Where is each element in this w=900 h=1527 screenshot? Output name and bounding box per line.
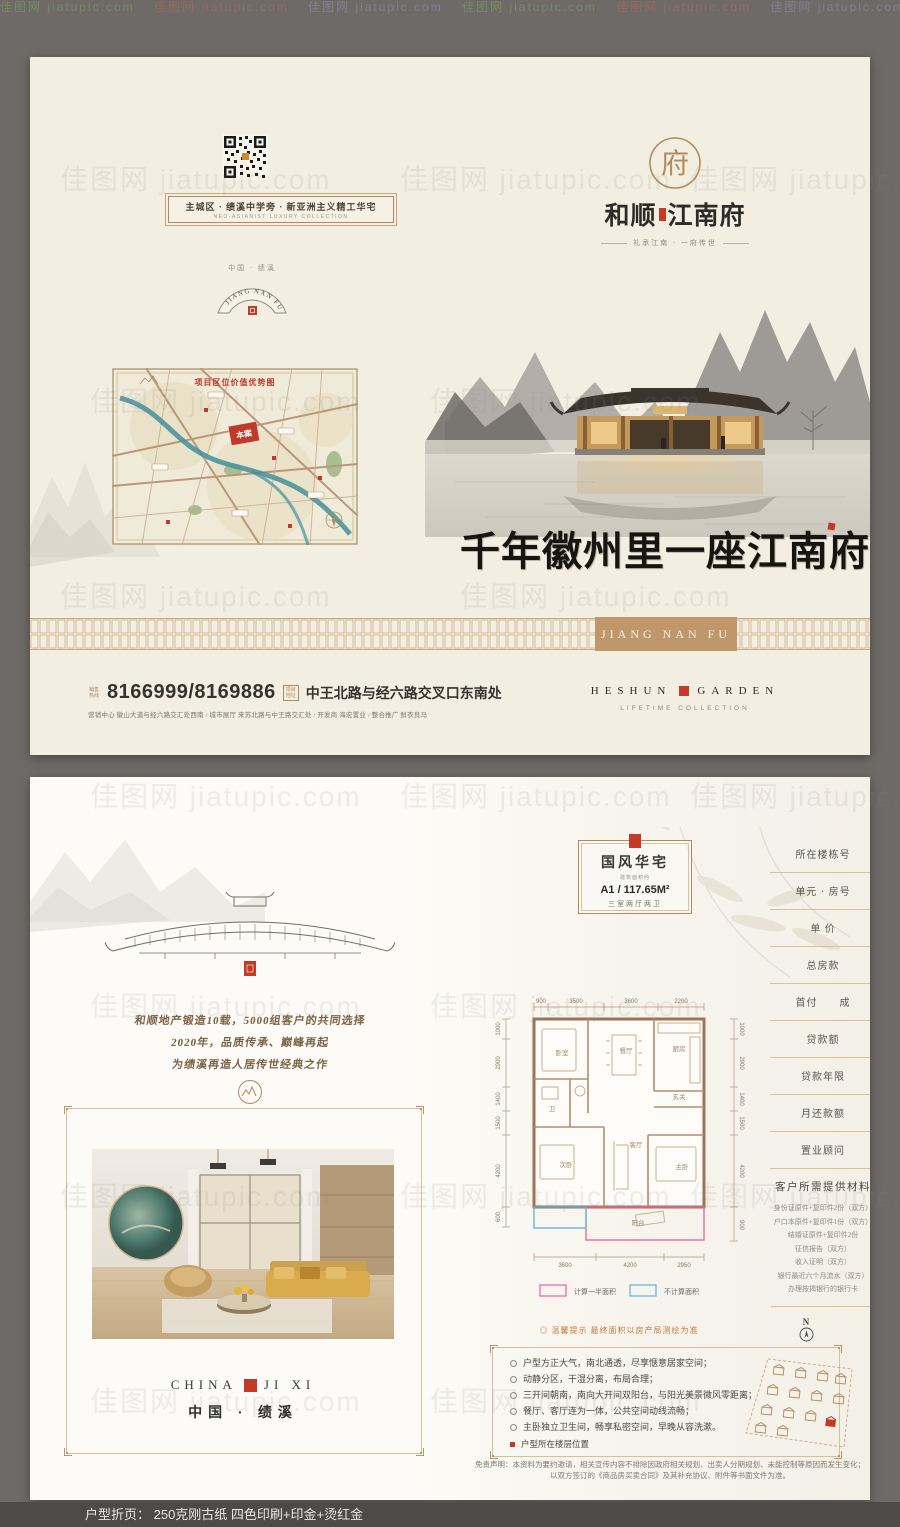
feature-item: 户型方正大气，南北通透，尽享惬意居家空间； [510,1355,778,1371]
dim-label: 4200 [738,1164,744,1178]
feature-item: 餐厅、客厅连为一体，公共空间动线流畅； [510,1403,778,1419]
qr-code [222,134,268,180]
material-item: 银行最近六个月流水（双方） [752,1270,870,1284]
room-label: 厨房 [673,1044,686,1053]
dim-label: 1000 [496,1022,502,1036]
room-label: 餐厅 [620,1046,634,1055]
form-field: 首付 成 [758,987,870,1024]
brochure-mockup: 主城区 · 绩溪中学旁 · 新亚洲主义精工华宅 NEO-ASIANIST LUX… [0,0,900,1527]
brand-name-right: 江南府 [668,196,746,232]
address-icon: 项目地址 [283,685,299,701]
brand-name-left: 和顺 [604,196,656,232]
legend-none-label: 不计算面积 [664,1287,699,1296]
top-watermark-row: 佳图网 jiatupic.com 佳图网 jiatupic.com 佳图网 ji… [0,0,900,15]
sofa-icon [266,1261,370,1297]
form-field: 所在楼栋号 [758,839,870,876]
calligraphy-slogan: 千年徽州里一座江南府 [460,529,870,574]
intro-line: 和顺地产锻造10载，5000组客户的共同选择 [83,1010,416,1032]
spec-caption-bar: 户型折页： 250克刚古纸 四色印刷+印金+烫红金 [0,1502,900,1527]
location-map: 本案 项目区位价值优势图 [112,368,358,545]
room-label: 阳台 [632,1218,645,1227]
form-field: 单元 · 房号 [758,876,870,913]
banner-subtitle: NEO-ASIANIST LUXURY COLLECTION [169,214,393,220]
compass-n-label: N [788,1317,824,1327]
dim-label: 4200 [623,1263,637,1269]
floorplan-legend: 计算一半面积 不计算面积 [540,1285,699,1296]
legend-half-label: 计算一半面积 [574,1287,616,1296]
unit-card-seal-icon [629,834,641,848]
form-field: 贷款年限 [758,1061,870,1098]
floor-plan: 900 3500 3600 2200 1000 2900 1400 1500 4… [486,995,752,1305]
brand-en-seal-icon [679,686,689,696]
features-list: 户型方正大气，南北通透，尽享惬意居家空间； 动静分区，干湿分离，布局合理； 三开… [510,1355,778,1450]
form-field: 置业顾问 [758,1135,870,1172]
dim-label: 4200 [496,1164,502,1178]
brand-roundel-icon: 府 [647,135,703,191]
disclaimer: 免责声明：本资料为要约邀请，相关宣传内容不排除因政府相关规划、出卖人分期规划、未… [460,1459,870,1481]
dim-label: 3600 [624,999,638,1005]
project-address: 中王北路与经六路交叉口东南处 [306,683,502,703]
feature-item: 动静分区，干湿分离，布局合理； [510,1371,778,1387]
banner-title: 主城区 · 绩溪中学旁 · 新亚洲主义精工华宅 [169,200,393,213]
form-field: 贷款额 [758,1024,870,1061]
china-cn: 中国 · 绩溪 [66,1402,420,1422]
form-field: 月还款额 [758,1098,870,1135]
room-label: 主卧 [676,1162,690,1171]
roof-seal-icon [244,961,256,976]
fan-red-seal-icon [248,306,257,315]
contact-block: 销售热线 8166999/8169886 项目地址 中王北路与经六路交叉口东南处… [88,681,518,719]
cover-spread: 主城区 · 绩溪中学旁 · 新亚洲主义精工华宅 NEO-ASIANIST LUX… [30,57,870,755]
material-item: 结婚证原件+复印件2份 [752,1229,870,1243]
hotline-icon: 销售热线 [88,687,100,699]
dim-label: 1400 [738,1092,744,1106]
calligraphy-block: 千年徽州里一座江南府 [460,519,855,577]
feature-item: 主卧独立卫生间，畅享私密空间，早晚从容洗漱。 [510,1419,778,1435]
hotline-numbers: 8166999/8169886 [107,681,276,704]
material-item: 户口本原件+复印件1份（双方） [752,1216,870,1230]
country-label: 中国 · 绩溪 [192,263,312,273]
map-compass-icon [326,512,342,528]
lattice-band: JIANG NAN FU [30,617,870,651]
fan-seal: JIANG NAN FU [212,275,292,321]
intro-copy: 和顺地产锻造10载，5000组客户的共同选择 2020年，品质传承、巅峰再起 为… [85,1010,415,1076]
dim-label: 1500 [496,1116,502,1130]
intro-line: 为绩溪再造人居传世经典之作 [83,1054,416,1076]
inside-spread: 和顺地产锻造10载，5000组客户的共同选择 2020年，品质传承、巅峰再起 为… [30,777,870,1500]
disclaimer-line2: 以双方签订的《商品房买卖合同》及其补充协议、附件等书面文件为准。 [460,1470,870,1481]
room-label: 客厅 [630,1140,644,1149]
feature-item: 三开间朝南，南向大开间双阳台，与阳光美景微风零距离； [510,1387,778,1403]
brand-logo: 府 和顺江南府 礼承江南 · 一府传世 [585,135,765,248]
brand-mini-seal-icon [659,208,666,221]
brand-name: 和顺江南府 [585,196,765,232]
location-banner: 主城区 · 绩溪中学旁 · 新亚洲主义精工华宅 NEO-ASIANIST LUX… [168,196,394,223]
china-seal-icon [244,1379,257,1392]
room-label: 卧室 [556,1048,570,1057]
china-en: CHINA [171,1377,237,1393]
room-label: 玄关 [673,1092,687,1101]
north-compass: N [788,1317,824,1347]
site-plan [740,1353,866,1453]
dim-label: 2900 [738,1056,744,1070]
compass-icon [799,1327,814,1342]
armchair-icon [164,1265,212,1297]
calligraphy-seal-icon [827,522,835,530]
brand-en-left: HESHUN [591,685,672,697]
disclaimer-line1: 免责声明：本资料为要约邀请，相关宣传内容不排除因政府相关规划、出卖人分期规划、未… [460,1459,870,1470]
form-field: 总房款 [758,950,870,987]
dim-label: 1000 [738,1022,744,1036]
interior-photo [92,1149,394,1339]
dim-label: 2200 [674,999,688,1005]
room-label: 卫 [549,1105,556,1113]
band-nameplate: JIANG NAN FU [595,617,737,651]
dim-label: 2900 [496,1056,502,1070]
china-jixi-block: CHINA JI XI 中国 · 绩溪 [66,1377,420,1422]
unit-card: 国风华宅 建筑面积约 A1 / 117.65M² 三室两厅两卫 [578,840,692,914]
buyer-form: 所在楼栋号 单元 · 房号 单 价 总房款 首付 成 贷款额 贷款年限 月还款额… [758,839,870,1172]
pavilion-icon [551,388,789,455]
dim-label: 1400 [496,1092,502,1106]
room-label: 次卧 [560,1160,574,1169]
dim-label: 900 [536,999,547,1005]
form-field: 单 价 [758,913,870,950]
roof-drawing-icon [105,887,395,987]
floor-location-note: 户型所在楼层位置 [510,1438,778,1450]
brand-en-right: GARDEN [697,685,779,697]
material-item: 收入证明（双方） [752,1256,870,1270]
dim-label: 600 [496,1211,502,1222]
dim-label: 3500 [569,999,583,1005]
ink-landscape-scene [425,292,870,537]
dim-label: 2950 [677,1263,691,1269]
material-item: 征信报告（双方） [752,1243,870,1257]
dim-label: 1500 [738,1116,744,1130]
dim-label: 900 [738,1220,744,1231]
agency-line: 营销中心 徽山大道与经六路交汇处西南 / 城市展厅 来苏北路与中王路交汇处 / … [88,709,518,719]
dim-label: 3600 [558,1263,572,1269]
tip-line: ◎ 温馨提示 最终面积以房产局测绘为准 [486,1325,752,1336]
map-title: 项目区位价值优势图 [195,377,276,387]
materials-list: 客户所需提供材料 身份证原件+复印件2份（双方） 户口本原件+复印件1份（双方）… [752,1179,870,1307]
ornament-icon [237,1079,263,1105]
svg-text:府: 府 [661,148,689,180]
site-plan-highlight-icon [825,1416,836,1427]
brand-tagline: 礼承江南 · 一府传世 [585,238,765,248]
qr-center-logo [242,153,249,160]
brand-english-block: HESHUN GARDEN LIFETIME COLLECTION [565,685,805,712]
intro-line: 2020年，品质传承、巅峰再起 [83,1032,416,1054]
brand-en-subtitle: LIFETIME COLLECTION [565,705,805,712]
jixi-en: JI XI [264,1377,315,1393]
materials-title: 客户所需提供材料 [752,1179,870,1194]
material-item: 办理按揭银行的银行卡 [752,1283,870,1297]
material-item: 身份证原件+复印件2份（双方） [752,1202,870,1216]
